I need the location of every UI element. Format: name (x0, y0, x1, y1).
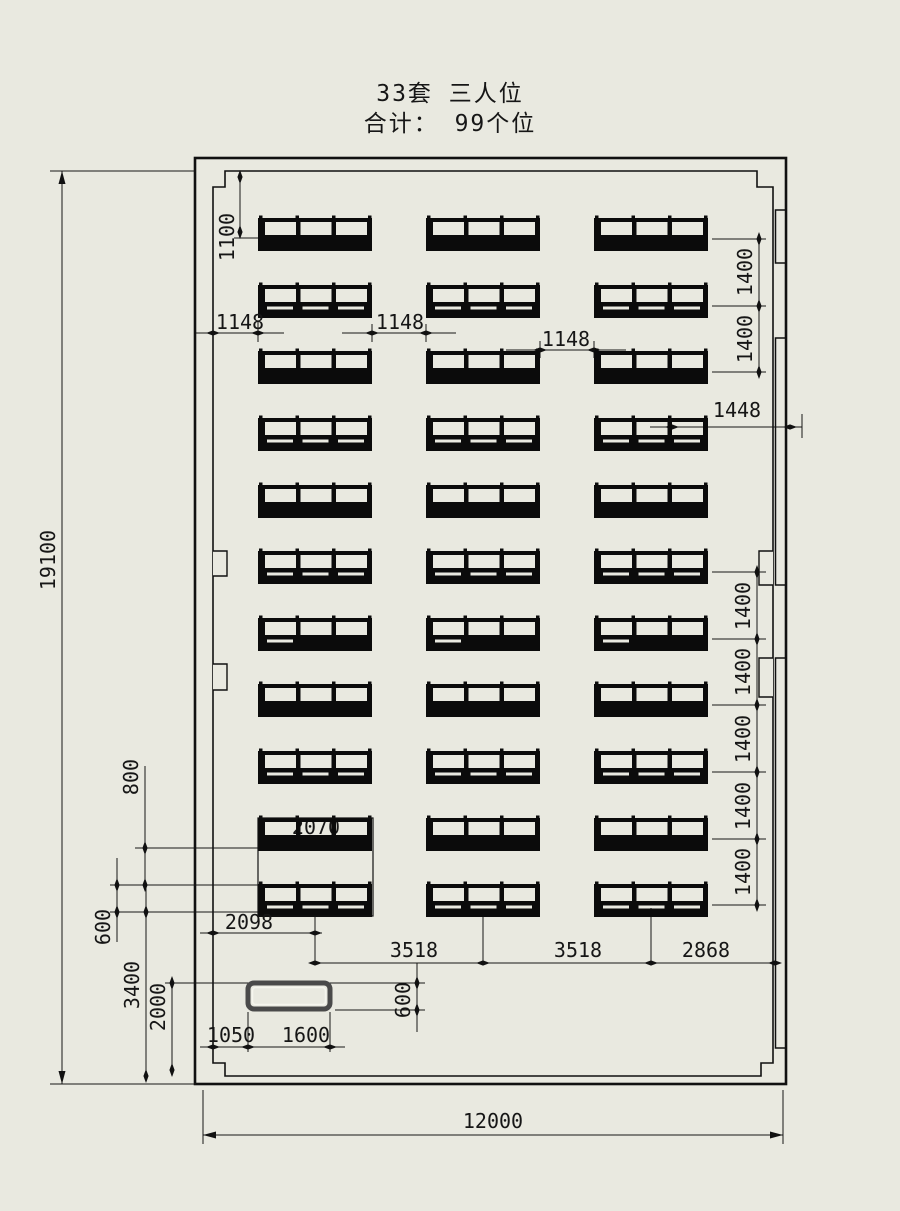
wall-pilaster (759, 551, 773, 585)
dim-label-3400[interactable]: 3400 (120, 961, 144, 1009)
seat-unit[interactable] (426, 483, 540, 519)
dim-label-1148[interactable]: 1148 (542, 327, 590, 351)
seat-unit[interactable] (258, 416, 372, 452)
podium[interactable] (248, 983, 330, 1009)
seat-unit[interactable] (426, 216, 540, 252)
dim-label-1148[interactable]: 1148 (216, 310, 264, 334)
dim-label-1400[interactable]: 1400 (731, 582, 755, 630)
seat-unit[interactable] (594, 682, 708, 718)
dim-label-12000[interactable]: 12000 (463, 1109, 523, 1133)
dim-label-2098[interactable]: 2098 (225, 910, 273, 934)
seat-unit[interactable] (594, 616, 708, 652)
window-post (776, 338, 786, 585)
seat-unit[interactable] (426, 349, 540, 385)
seat-unit[interactable] (594, 283, 708, 319)
seat-unit[interactable] (594, 816, 708, 852)
plan-subtitle[interactable]: 合计： 99个位 (364, 111, 537, 137)
dim-label-1448[interactable]: 1448 (713, 398, 761, 422)
seat-unit[interactable] (426, 283, 540, 319)
window-post (776, 658, 786, 1048)
seat-unit[interactable] (594, 216, 708, 252)
dim-label-1600[interactable]: 1600 (282, 1023, 330, 1047)
seat-unit[interactable] (258, 682, 372, 718)
seat-unit[interactable] (426, 549, 540, 585)
floor-plan-drawing: 33套 三人位 合计： 99个位 2070 19100 12000 1100 1… (0, 0, 900, 1211)
seat-unit[interactable] (426, 616, 540, 652)
dim-label-3518[interactable]: 3518 (554, 938, 602, 962)
seat-unit[interactable] (426, 749, 540, 785)
dim-label-1400[interactable]: 1400 (733, 315, 757, 363)
dim-label-2000[interactable]: 2000 (146, 983, 170, 1031)
seat-unit[interactable] (426, 416, 540, 452)
seat-unit[interactable] (258, 616, 372, 652)
dim-label-1100[interactable]: 1100 (215, 213, 239, 261)
wall-pilaster (759, 658, 773, 697)
seat-unit[interactable] (258, 283, 372, 319)
wall-pilaster (213, 664, 227, 690)
seat-unit[interactable] (594, 349, 708, 385)
cad-viewport: 33套 三人位 合计： 99个位 2070 19100 12000 1100 1… (0, 0, 900, 1211)
seat-unit[interactable] (258, 882, 372, 918)
dim-label-1050[interactable]: 1050 (207, 1023, 255, 1047)
window-post (776, 210, 786, 263)
dim-label-1400[interactable]: 1400 (731, 782, 755, 830)
seat-unit[interactable] (258, 483, 372, 519)
seat-unit[interactable] (594, 882, 708, 918)
seat-unit[interactable] (594, 483, 708, 519)
dim-label-1400[interactable]: 1400 (731, 715, 755, 763)
seat-unit[interactable] (594, 416, 708, 452)
seat-unit[interactable] (258, 549, 372, 585)
seat-unit[interactable] (258, 216, 372, 252)
dim-label-600-podium[interactable]: 600 (391, 982, 415, 1018)
dim-label-1148[interactable]: 1148 (376, 310, 424, 334)
dim-label-2868[interactable]: 2868 (682, 938, 730, 962)
dim-label-19100[interactable]: 19100 (36, 530, 60, 590)
seat-units (258, 216, 708, 918)
seat-unit[interactable] (258, 749, 372, 785)
seat-unit[interactable] (594, 749, 708, 785)
seat-unit[interactable] (594, 549, 708, 585)
plan-title[interactable]: 33套 三人位 (376, 81, 524, 107)
seat-unit[interactable] (426, 816, 540, 852)
dim-label-600[interactable]: 600 (91, 909, 115, 945)
dim-label-1400[interactable]: 1400 (733, 248, 757, 296)
seat-unit[interactable] (426, 882, 540, 918)
dim-label-800[interactable]: 800 (119, 759, 143, 795)
seat-unit[interactable] (258, 349, 372, 385)
dim-label-1400[interactable]: 1400 (731, 848, 755, 896)
wall-pilaster (213, 551, 227, 576)
seat-unit[interactable] (426, 682, 540, 718)
dim-label-3518[interactable]: 3518 (390, 938, 438, 962)
dim-label-1400[interactable]: 1400 (731, 648, 755, 696)
